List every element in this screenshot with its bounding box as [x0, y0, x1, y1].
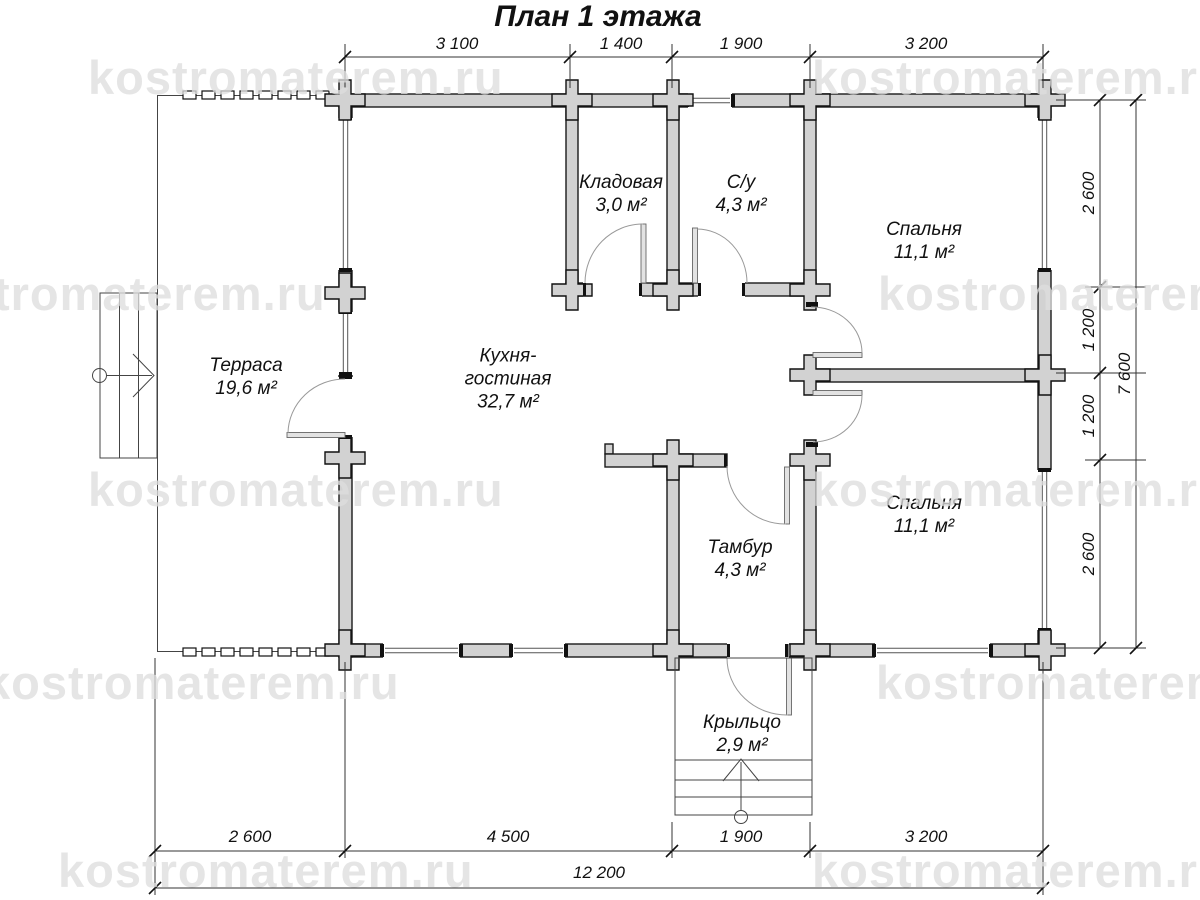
log-joint-cross: [653, 630, 693, 670]
dim-bottom-total: 12 200: [573, 863, 625, 883]
dim-top-4: 3 200: [905, 34, 948, 54]
floor-plan-page: { "title": "План 1 этажа", "watermark": …: [0, 0, 1200, 900]
log-joint-cross: [1025, 355, 1065, 395]
door-jambs: [339, 283, 818, 657]
plan-title: План 1 этажа: [494, 0, 701, 34]
dim-right-total: 7 600: [1115, 353, 1135, 396]
dim-bottom-4: 3 200: [905, 827, 948, 847]
log-joint-cross: [552, 80, 592, 120]
room-name: Кухня-: [480, 346, 537, 367]
dim-bottom-2: 4 500: [487, 827, 530, 847]
dim-bottom-3: 1 900: [720, 827, 763, 847]
log-joint-cross: [790, 355, 830, 395]
log-joint-cross: [325, 438, 365, 478]
room-area: 32,7 м²: [477, 392, 539, 413]
room-label-terrace: Терраса 19,6 м²: [209, 354, 282, 400]
room-area: 3,0 м²: [595, 195, 646, 216]
dim-right-3: 1 200: [1079, 395, 1099, 438]
log-joint-cross: [653, 440, 693, 480]
room-label-storage: Кладовая 3,0 м²: [579, 171, 663, 217]
terrace-steps: [93, 293, 158, 458]
log-joint-cross: [790, 630, 830, 670]
room-area: 4,3 м²: [714, 560, 765, 581]
room-name: Спальня: [886, 219, 962, 240]
room-label-porch: Крыльцо 2,9 м²: [703, 711, 781, 757]
dim-right-2: 1 200: [1079, 309, 1099, 352]
room-name: Терраса: [209, 355, 282, 376]
door-openings: [338, 282, 790, 660]
log-joint-cross: [325, 273, 365, 313]
room-label-bathroom: С/у 4,3 м²: [715, 171, 766, 217]
room-area: 19,6 м²: [215, 378, 277, 399]
room-name: Спальня: [886, 493, 962, 514]
dim-right-1: 2 600: [1079, 172, 1099, 215]
log-joint-cross: [1025, 630, 1065, 670]
room-area: 2,9 м²: [716, 735, 767, 756]
room-label-bedroom2: Спальня 11,1 м²: [886, 492, 962, 538]
room-label-kitchen: Кухня- гостиная 32,7 м²: [465, 345, 552, 414]
room-area: 11,1 м²: [894, 242, 954, 263]
room-label-bedroom1: Спальня 11,1 м²: [886, 218, 962, 264]
floor-plan-drawing: [0, 0, 1200, 900]
dim-top-2: 1 400: [600, 34, 643, 54]
room-area: 11,1 м²: [894, 516, 954, 537]
room-name: Кладовая: [579, 172, 663, 193]
room-label-tambour: Тамбур 4,3 м²: [707, 536, 772, 582]
room-name: Крыльцо: [703, 712, 781, 733]
log-joint-cross: [653, 270, 693, 310]
room-name: С/у: [727, 172, 756, 193]
room-name: гостиная: [465, 369, 552, 390]
dim-top-3: 1 900: [720, 34, 763, 54]
dim-right-4: 2 600: [1079, 533, 1099, 576]
dim-top-1: 3 100: [436, 34, 479, 54]
room-area: 4,3 м²: [715, 195, 766, 216]
dim-bottom-1: 2 600: [229, 827, 272, 847]
log-joint-cross: [653, 80, 693, 120]
room-name: Тамбур: [707, 537, 772, 558]
